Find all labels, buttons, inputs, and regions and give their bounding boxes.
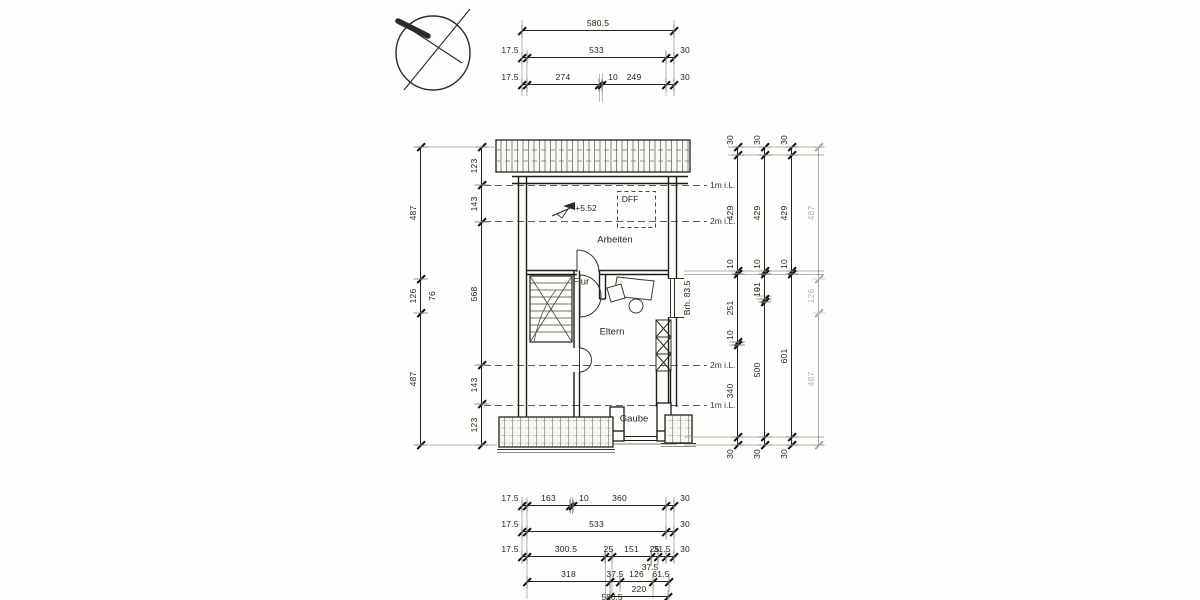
stool bbox=[629, 299, 643, 313]
desk-and-chair bbox=[607, 277, 654, 313]
top-roof-band bbox=[496, 140, 690, 172]
level-marker-icon bbox=[552, 202, 575, 218]
bottom-roof-band bbox=[497, 415, 696, 453]
north-arrow-icon bbox=[396, 9, 470, 90]
east-window bbox=[667, 278, 684, 318]
extension-lines bbox=[413, 20, 824, 599]
floor-plan-page: 580.517.55333017.5274102493017.516310360… bbox=[0, 0, 1200, 600]
floor-plan-drawing bbox=[0, 0, 1200, 600]
door-arcs bbox=[577, 250, 601, 372]
roof-window-box bbox=[618, 192, 656, 228]
staircase bbox=[530, 276, 572, 342]
